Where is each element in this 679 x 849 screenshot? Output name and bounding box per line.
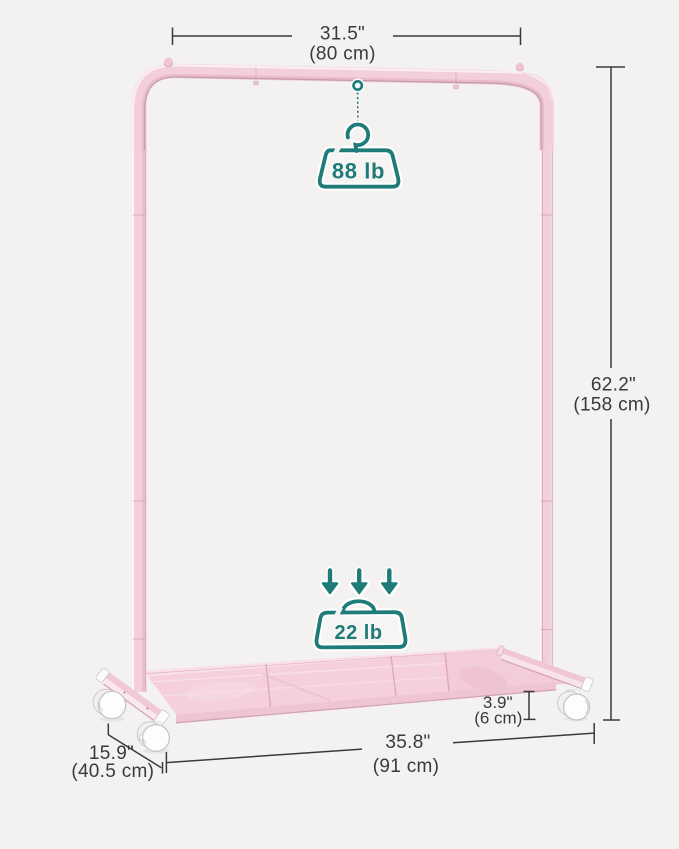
svg-text:(91 cm): (91 cm) [373, 756, 440, 777]
svg-text:31.5": 31.5" [320, 24, 365, 45]
svg-text:(40.5 cm): (40.5 cm) [71, 761, 154, 782]
svg-text:22 lb: 22 lb [334, 622, 382, 644]
svg-text:(80 cm): (80 cm) [309, 44, 376, 65]
svg-text:(6 cm): (6 cm) [474, 709, 522, 728]
svg-text:62.2": 62.2" [591, 375, 636, 396]
svg-text:88 lb: 88 lb [332, 159, 385, 184]
svg-text:(158 cm): (158 cm) [573, 395, 650, 416]
svg-text:35.8": 35.8" [385, 732, 430, 753]
